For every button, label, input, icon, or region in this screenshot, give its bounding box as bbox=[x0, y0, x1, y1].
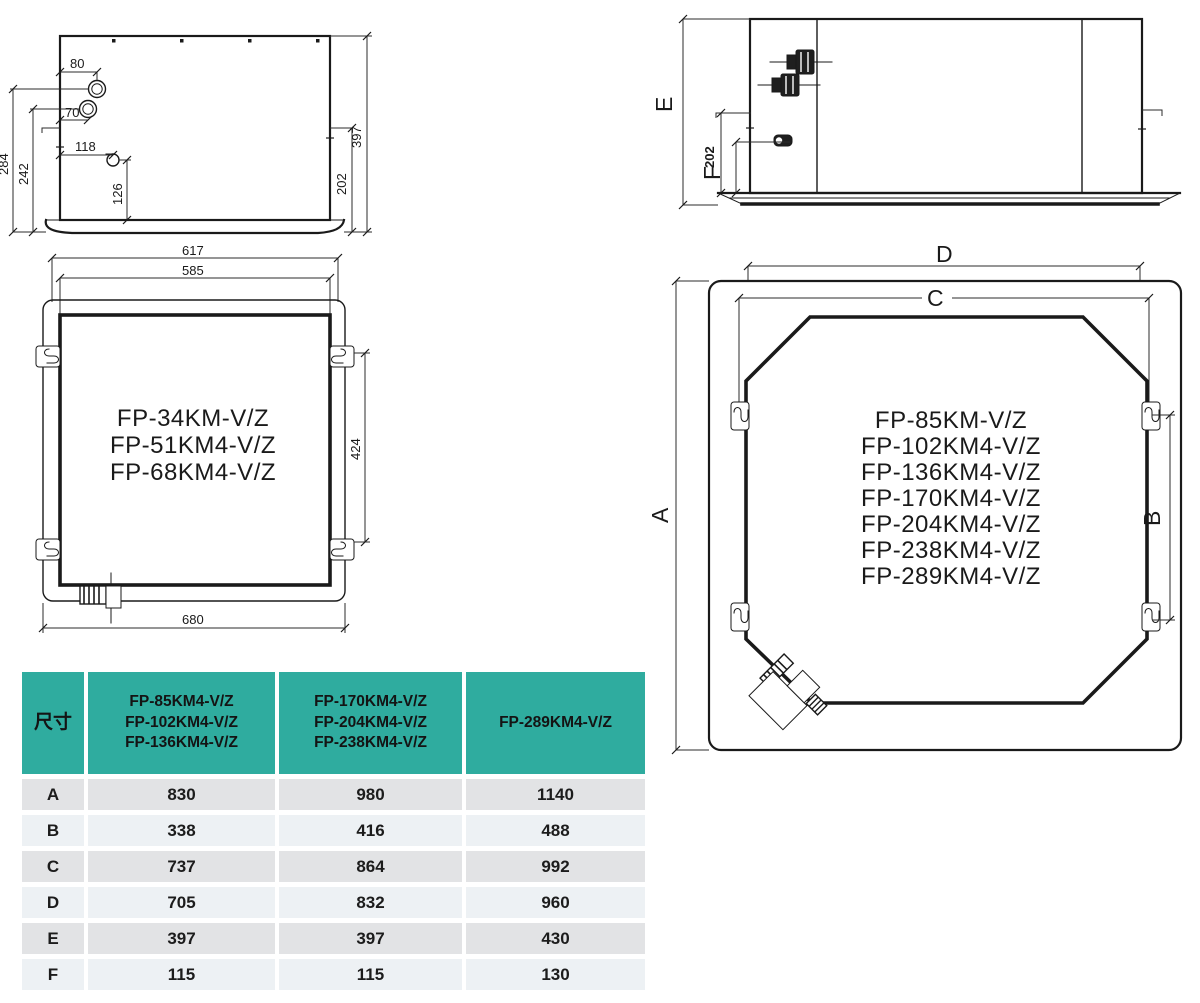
table-cell: 488 bbox=[466, 815, 645, 846]
dim-126-label: 126 bbox=[110, 183, 125, 205]
unit-body-outline bbox=[60, 36, 330, 220]
model-line: FP-68KM4-V/Z bbox=[110, 459, 276, 486]
table-cell: 397 bbox=[88, 923, 275, 954]
dim-242-label: 242 bbox=[16, 163, 31, 185]
table-cell: 737 bbox=[88, 851, 275, 882]
model-line: FP-51KM4-V/Z bbox=[110, 432, 276, 459]
table-header-group2: FP-170KM4-V/Z FP-204KM4-V/Z FP-238KM4-V/… bbox=[279, 672, 462, 774]
dim-C-label: C bbox=[927, 285, 944, 311]
table-cell: 338 bbox=[88, 815, 275, 846]
table-cell: 830 bbox=[88, 779, 275, 810]
dim-C: C bbox=[735, 285, 1153, 403]
dim-A: A bbox=[647, 277, 709, 754]
dim-118-label: 118 bbox=[75, 139, 96, 154]
dim-202: 202 bbox=[702, 109, 754, 197]
dim-F-label: F bbox=[699, 166, 725, 180]
table-row-label: A bbox=[22, 779, 84, 810]
bottom-panel bbox=[46, 220, 344, 233]
table-cell: 416 bbox=[279, 815, 462, 846]
bottom-panel bbox=[718, 193, 1180, 204]
fan-coil-dimension-sheet: 80 70 118 126 284 bbox=[0, 0, 1200, 1003]
table-row-label: C bbox=[22, 851, 84, 882]
dim-680: 680 bbox=[39, 603, 349, 633]
table-cell: 1140 bbox=[466, 779, 645, 810]
table-row-label: D bbox=[22, 887, 84, 918]
unit-body-outline bbox=[750, 19, 1142, 193]
dim-680-label: 680 bbox=[182, 612, 204, 627]
dim-70-label: 70 bbox=[65, 105, 79, 120]
table-cell: 992 bbox=[466, 851, 645, 882]
dim-B: B bbox=[1139, 411, 1175, 624]
table-cell: 960 bbox=[466, 887, 645, 918]
model-line: FP-170KM4-V/Z bbox=[861, 485, 1041, 512]
plan-view-large-drawing: D C A B bbox=[655, 245, 1200, 800]
table-cell: 705 bbox=[88, 887, 275, 918]
dim-80-label: 80 bbox=[70, 56, 84, 71]
model-line: FP-136KM4-V/Z bbox=[861, 459, 1041, 486]
pipe-fittings bbox=[758, 50, 832, 146]
model-line: FP-238KM4-V/Z bbox=[861, 537, 1041, 564]
dim-585: 585 bbox=[56, 263, 334, 315]
dim-202-label: 202 bbox=[702, 146, 717, 168]
model-line: FP-85KM-V/Z bbox=[875, 407, 1027, 434]
plan-view-small-drawing: 617 585 424 FP-34KM-V/Z FP-51KM bbox=[0, 245, 430, 660]
table-header-group1: FP-85KM4-V/Z FP-102KM4-V/Z FP-136KM4-V/Z bbox=[88, 672, 275, 774]
dim-397: 397 bbox=[330, 32, 372, 236]
table-row-label: B bbox=[22, 815, 84, 846]
dim-617-label: 617 bbox=[182, 243, 204, 258]
model-list: FP-34KM-V/Z FP-51KM4-V/Z FP-68KM4-V/Z bbox=[110, 405, 276, 486]
dim-284-label: 284 bbox=[0, 153, 11, 175]
model-line: FP-34KM-V/Z bbox=[117, 405, 269, 432]
table-cell: 864 bbox=[279, 851, 462, 882]
table-cell: 980 bbox=[279, 779, 462, 810]
table-cell: 115 bbox=[279, 959, 462, 990]
table-row-label: E bbox=[22, 923, 84, 954]
drain-connector bbox=[80, 573, 121, 623]
model-line: FP-289KM4-V/Z bbox=[861, 563, 1041, 590]
model-line: FP-102KM4-V/Z bbox=[861, 433, 1041, 460]
table-cell: 130 bbox=[466, 959, 645, 990]
table-cell: 832 bbox=[279, 887, 462, 918]
corner-connector bbox=[749, 654, 832, 740]
table-cell: 115 bbox=[88, 959, 275, 990]
dim-424-label: 424 bbox=[348, 438, 363, 460]
side-view-small-drawing: 80 70 118 126 284 bbox=[0, 20, 420, 248]
top-edge-screws bbox=[112, 39, 320, 43]
model-line: FP-204KM4-V/Z bbox=[861, 511, 1041, 538]
table-row-label: F bbox=[22, 959, 84, 990]
dim-585-label: 585 bbox=[182, 263, 204, 278]
dim-202-label: 202 bbox=[334, 173, 349, 195]
dim-D: D bbox=[744, 241, 1144, 281]
dim-424: 424 bbox=[348, 349, 370, 546]
dim-242: 242 bbox=[16, 105, 79, 236]
table-cell: 430 bbox=[466, 923, 645, 954]
model-list: FP-85KM-V/Z FP-102KM4-V/Z FP-136KM4-V/Z … bbox=[861, 407, 1041, 590]
table-header-group3: FP-289KM4-V/Z bbox=[466, 672, 645, 774]
dim-80: 80 bbox=[56, 56, 101, 80]
dim-E-label: E bbox=[651, 97, 677, 112]
dimension-table: 尺寸 FP-85KM4-V/Z FP-102KM4-V/Z FP-136KM4-… bbox=[22, 672, 645, 990]
dim-B-label: B bbox=[1139, 511, 1165, 526]
dim-A-label: A bbox=[647, 507, 673, 523]
table-header-dimension: 尺寸 bbox=[22, 672, 84, 774]
side-view-large-drawing: E 202 F bbox=[650, 0, 1200, 245]
table-cell: 397 bbox=[279, 923, 462, 954]
dim-D-label: D bbox=[936, 241, 953, 267]
